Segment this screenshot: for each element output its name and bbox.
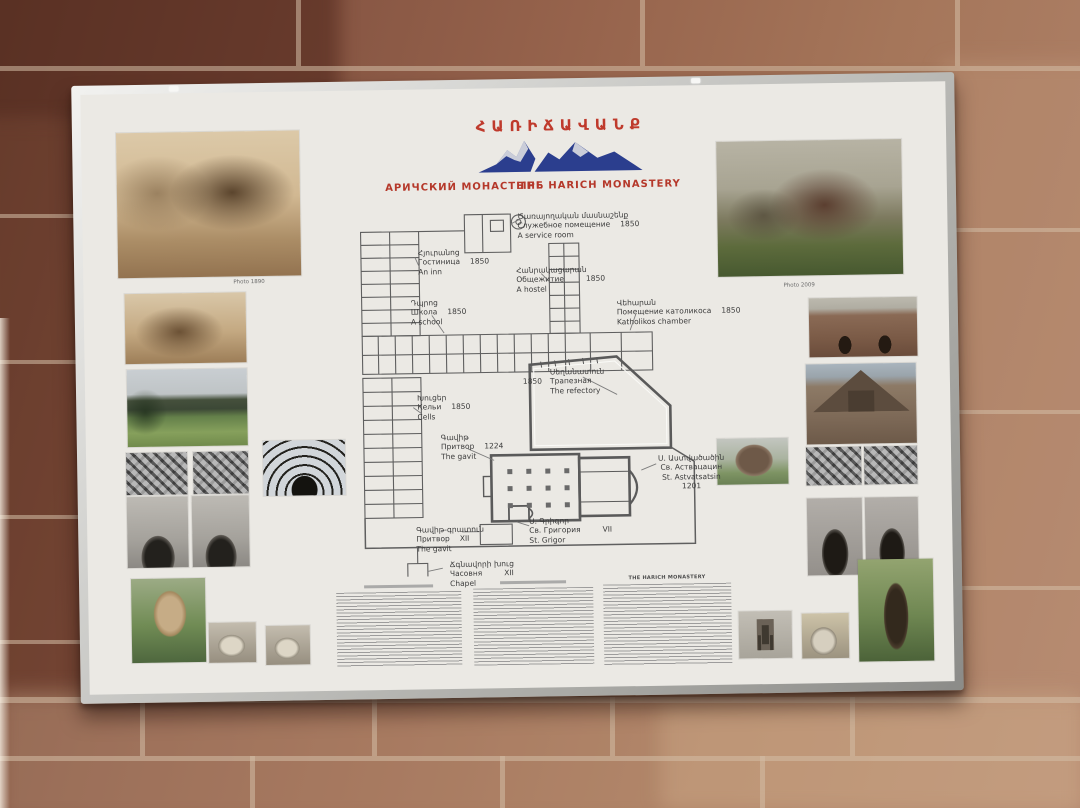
photo-ornament-1 (126, 452, 188, 495)
footer-header-russian (500, 580, 566, 584)
plan-label-school: Դպրոց Школа1850 A school (411, 298, 467, 327)
board-subtitle-english: THE HARICH MONASTERY (510, 178, 690, 192)
photo-church-facade (809, 297, 918, 358)
mortar-line (0, 66, 1080, 71)
footer-text-armenian (336, 584, 462, 661)
label-year: 1850 (523, 377, 542, 396)
label-year: XII (504, 568, 514, 577)
label-year: 1850 (721, 306, 740, 315)
photo-cross-stone (739, 611, 793, 659)
wall-light-patch (660, 700, 1080, 808)
photo-1890-caption: Photo 1890 (233, 279, 265, 285)
photo-carving-detail-2 (864, 446, 918, 485)
label-en: The gavit (441, 451, 504, 461)
photo-church-gable (806, 363, 917, 445)
photo-monk (858, 558, 935, 661)
plan-label-service-room: Ծառայողական մասնաշենք Служебное помещени… (517, 210, 639, 240)
plan-label-katholikos-chamber: Վեհարան Помещение католикоса1850 Katholi… (617, 296, 741, 326)
photo-ornament-2 (193, 451, 249, 494)
photo-monastery-1890 (116, 130, 301, 278)
label-en: A hostel (516, 283, 605, 294)
label-hy: Սեղանատուն (550, 367, 605, 377)
mortar-line (955, 0, 960, 66)
mortar-line (372, 697, 377, 756)
photo-stone-bowl-1 (209, 622, 257, 663)
footer-text-russian (473, 580, 594, 659)
mortar-line (500, 756, 505, 808)
plan-label-st-grigor: Ս. Գրիգոր Св. ГригорияVII St. Grigor (529, 516, 612, 545)
photo-carved-arch-2 (192, 495, 250, 567)
photo-hermit-rock (131, 578, 206, 663)
mortar-line (0, 640, 84, 644)
label-en: An inn (418, 266, 489, 276)
label-year: XII (460, 534, 470, 543)
mortar-line (610, 697, 615, 756)
mountain-logo (476, 132, 647, 177)
plan-label-st-astvatsatsin: Ս. Աստվածածին Св. Аствацацин St. Astvats… (646, 453, 737, 492)
label-year: 1850 (470, 257, 489, 266)
label-ru: Часовня (450, 569, 482, 579)
label-en: A school (411, 317, 467, 327)
label-ru: Служебное помещение (517, 220, 610, 230)
plan-label-cells: Խուցեր Кельи1850 Cells (417, 393, 471, 422)
label-year: 1850 (447, 307, 466, 316)
photo-stone-bowl-2 (266, 625, 311, 665)
label-en: St. Grigor (529, 534, 612, 545)
photo-old-ruins (124, 292, 246, 364)
mortar-line (640, 0, 645, 66)
photo-landscape (127, 368, 248, 447)
board-frame: ՀԱՌԻՃԱՎԱՆՔ АРИЧСКИЙ МОНАСТЫРЬ THE HARICH… (71, 72, 964, 704)
label-ru: Школа (411, 308, 438, 317)
label-ru: Кельи (417, 403, 441, 412)
mortar-line (0, 756, 1080, 761)
footer-header-english: THE HARICH MONASTERY (603, 574, 731, 582)
label-en: Katholikos chamber (617, 315, 741, 326)
mortar-line (0, 360, 84, 364)
plan-label-refectory: 1850 Սեղանատուն Трапезная The refectory (523, 367, 605, 396)
photo-of-information-board: ՀԱՌԻՃԱՎԱՆՔ АРИЧСКИЙ МОНАСТЫРЬ THE HARICH… (0, 0, 1080, 808)
label-year: 1850 (620, 219, 639, 228)
label-year: 1850 (451, 402, 470, 411)
frame-clip (169, 86, 178, 91)
mortar-line (850, 697, 855, 756)
label-en: Cells (417, 411, 470, 421)
label-ru: Притвор (441, 442, 475, 452)
label-en: A service room (518, 229, 640, 240)
label-year: 1850 (586, 274, 605, 283)
footer-text-english: THE HARICH MONASTERY (603, 574, 732, 657)
label-ru: Св. Григория (529, 525, 580, 535)
photo-dome-scaffold-arcs (263, 440, 346, 496)
photo-portal-1 (807, 498, 863, 576)
frame-clip (691, 78, 700, 83)
photo-carving-detail-1 (806, 447, 862, 486)
plan-label-gavit-gratun: Գավիթ-գրատուն ПритворXII The gavit (416, 525, 484, 554)
label-ru: Притвор (416, 534, 450, 544)
mortar-line (952, 410, 1080, 414)
label-ru: Общежитие (516, 275, 564, 285)
photo-carved-arch-1 (127, 496, 189, 568)
footer-header-armenian (364, 584, 433, 588)
mortar-line (952, 228, 1080, 232)
label-ru: Помещение католикоса (617, 306, 712, 316)
label-year: 1201 (646, 481, 736, 492)
photo-2009-caption: Photo 2009 (783, 282, 815, 288)
plan-label-hostel: Հանրակացարան Общежитие1850 A hostel (516, 265, 605, 295)
mortar-line (760, 756, 765, 808)
plan-label-gavit: Գավիթ Притвор1224 The gavit (441, 432, 504, 461)
mortar-line (0, 214, 84, 218)
photo-stone-vessel (802, 613, 850, 659)
mortar-line (952, 586, 1080, 590)
mortar-line (250, 756, 255, 808)
label-year: VII (602, 525, 612, 534)
edge-light (0, 318, 10, 808)
mortar-line (140, 697, 145, 756)
label-hy: Գավիթ-գրատուն (416, 525, 484, 535)
label-en: The refectory (550, 385, 605, 395)
label-ru: Гостиница (418, 257, 460, 267)
photo-monastery-2009 (716, 139, 903, 277)
mortar-line (0, 515, 84, 519)
board-panel: ՀԱՌԻՃԱՎԱՆՔ АРИЧСКИЙ МОНАСТЫРЬ THE HARICH… (80, 81, 954, 695)
plan-label-inn: Հյուրանոց Гостиница1850 An inn (418, 247, 490, 276)
label-year: 1224 (484, 442, 503, 451)
mortar-line (296, 0, 301, 66)
label-en: The gavit (416, 543, 484, 553)
